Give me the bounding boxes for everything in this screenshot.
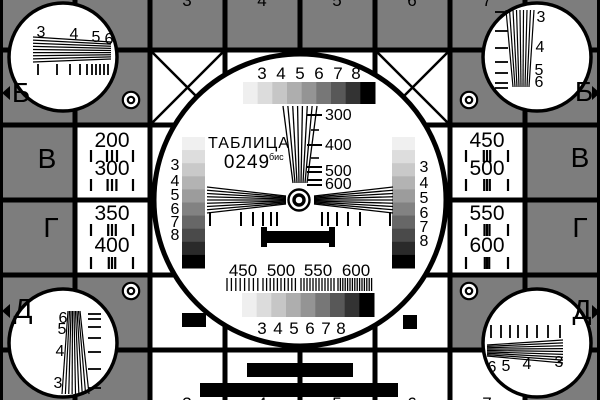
freq-600: 600 bbox=[469, 234, 504, 257]
row-label-d-left: Д bbox=[14, 293, 33, 324]
freq-ticks-500 bbox=[507, 179, 509, 191]
wedge-tl-6: 6 bbox=[105, 31, 114, 48]
grayscale-strip-top-step bbox=[316, 82, 331, 104]
grayscale-bar-left-step bbox=[182, 203, 205, 217]
registration-target bbox=[466, 97, 472, 103]
grayscale-strip-bottom-step bbox=[315, 293, 330, 317]
freq-ticks-300 bbox=[90, 179, 92, 191]
grayscale-bar-left-step bbox=[182, 255, 205, 269]
strip-bottom-4: 4 bbox=[273, 319, 282, 338]
freq-ticks-600 bbox=[465, 257, 467, 269]
registration-target bbox=[466, 288, 472, 294]
freq-ticks-350 bbox=[132, 224, 134, 236]
grayscale-strip-top-step bbox=[243, 82, 258, 104]
burst-label-550: 550 bbox=[304, 261, 332, 280]
wedge-top-right-line bbox=[523, 10, 524, 87]
wedge-tl-5: 5 bbox=[92, 29, 101, 46]
edge-bottom-3: 3 bbox=[182, 394, 191, 400]
freq-350: 350 bbox=[94, 202, 129, 225]
grayscale-bar-right-step bbox=[392, 255, 415, 269]
wedge-bl-5: 5 bbox=[58, 321, 67, 338]
registration-target bbox=[128, 97, 134, 103]
grayscale-bar-left-step bbox=[182, 216, 205, 230]
row-label-g-right: Г bbox=[572, 212, 587, 243]
wedge-tr-6: 6 bbox=[535, 74, 544, 91]
row-label-g-left: Г bbox=[43, 212, 58, 243]
grayscale-strip-top-step bbox=[272, 82, 287, 104]
edge-top-7: 7 bbox=[482, 0, 491, 10]
freq-ticks-300 bbox=[132, 179, 134, 191]
center-black-bar bbox=[263, 231, 333, 243]
grayscale-bar-left-step bbox=[182, 242, 205, 256]
freq-ticks-200 bbox=[132, 150, 134, 162]
wedge-scale-400: 400 bbox=[325, 137, 352, 154]
grayscale-bar-right-step bbox=[392, 229, 415, 243]
grayscale-strip-top-step bbox=[302, 82, 317, 104]
freq-ticks-200 bbox=[90, 150, 92, 162]
freq-550: 550 bbox=[469, 202, 504, 225]
wedge-tr-3: 3 bbox=[537, 9, 546, 26]
strip-top-8: 8 bbox=[351, 64, 360, 83]
edge-top-5: 5 bbox=[332, 0, 341, 10]
grayscale-bar-right-step bbox=[392, 216, 415, 230]
stair-right-8: 8 bbox=[420, 233, 429, 250]
freq-ticks-500 bbox=[483, 179, 485, 191]
freq-ticks-400 bbox=[108, 257, 110, 269]
grayscale-strip-top-step bbox=[346, 82, 361, 104]
grayscale-bar-right-step bbox=[392, 189, 415, 203]
wedge-br-5: 5 bbox=[502, 358, 511, 375]
grayscale-strip-bottom-step bbox=[345, 293, 360, 317]
grayscale-strip-top-step bbox=[258, 82, 273, 104]
grayscale-bar-right-step bbox=[392, 163, 415, 177]
stair-right-3: 3 bbox=[420, 159, 429, 176]
freq-ticks-500 bbox=[489, 179, 491, 191]
freq-ticks-400 bbox=[114, 257, 116, 269]
freq-200: 200 bbox=[94, 129, 129, 152]
grayscale-bar-right-step bbox=[392, 203, 415, 217]
wedge-tl-4: 4 bbox=[70, 26, 79, 43]
grayscale-bar-right-step bbox=[392, 137, 415, 151]
row-label-d-right: Д bbox=[573, 294, 592, 325]
wedge-tl-3: 3 bbox=[37, 24, 46, 41]
grayscale-bar-right-step bbox=[392, 242, 415, 256]
center-bar-cap-left bbox=[261, 227, 267, 247]
stair-left-8: 8 bbox=[171, 227, 180, 244]
row-label-v-right: В bbox=[571, 142, 590, 173]
edge-line bbox=[0, 0, 3, 400]
row-label-b-right: Б bbox=[575, 76, 593, 107]
freq-ticks-500 bbox=[486, 179, 488, 191]
black-square-row-d-right bbox=[403, 315, 417, 329]
grayscale-strip-bottom-step bbox=[301, 293, 316, 317]
strip-top-4: 4 bbox=[276, 64, 285, 83]
wedge-br-3: 3 bbox=[555, 354, 564, 371]
row-label-b-left: Б bbox=[12, 77, 30, 108]
grayscale-bar-left-step bbox=[182, 163, 205, 177]
grayscale-strip-bottom-step bbox=[257, 293, 272, 317]
freq-ticks-550 bbox=[465, 224, 467, 236]
freq-ticks-600 bbox=[486, 257, 488, 269]
edge-top-3: 3 bbox=[182, 0, 191, 10]
freq-ticks-400 bbox=[132, 257, 134, 269]
wedge-scale-300: 300 bbox=[325, 107, 352, 124]
wedge-bottom-right-line bbox=[487, 349, 563, 350]
bottom-bar-long bbox=[200, 383, 398, 397]
strip-bottom-3: 3 bbox=[257, 319, 266, 338]
grayscale-strip-top-step bbox=[360, 82, 375, 104]
freq-ticks-450 bbox=[507, 150, 509, 162]
freq-500: 500 bbox=[469, 157, 504, 180]
burst-label-600: 600 bbox=[342, 261, 370, 280]
card-title-number: 0249 bbox=[224, 152, 270, 173]
card-title-suffix: бис bbox=[269, 152, 284, 162]
grayscale-bar-left-step bbox=[182, 189, 205, 203]
freq-ticks-600 bbox=[488, 257, 490, 269]
grayscale-strip-bottom-step bbox=[271, 293, 286, 317]
edge-bottom-4: 4 bbox=[257, 394, 266, 400]
strip-bottom-8: 8 bbox=[336, 319, 345, 338]
card-title-word: ТАБЛИЦА bbox=[208, 135, 290, 152]
test-card-canvas: ББВВГГДД20030035040045050055060034567834… bbox=[0, 0, 600, 400]
edge-bottom-6: 6 bbox=[407, 394, 416, 400]
freq-ticks-300 bbox=[115, 179, 117, 191]
strip-bottom-6: 6 bbox=[305, 319, 314, 338]
wedge-bl-3: 3 bbox=[54, 375, 63, 392]
freq-ticks-300 bbox=[111, 179, 113, 191]
freq-ticks-500 bbox=[465, 179, 467, 191]
strip-bottom-7: 7 bbox=[321, 319, 330, 338]
freq-ticks-600 bbox=[484, 257, 486, 269]
grayscale-bar-left-step bbox=[182, 137, 205, 151]
freq-ticks-350 bbox=[90, 224, 92, 236]
grayscale-strip-bottom-step bbox=[286, 293, 301, 317]
edge-top-4: 4 bbox=[257, 0, 266, 10]
freq-ticks-600 bbox=[507, 257, 509, 269]
tv-test-card: ББВВГГДД20030035040045050055060034567834… bbox=[0, 0, 600, 400]
wedge-tr-4: 4 bbox=[536, 39, 545, 56]
strip-top-6: 6 bbox=[314, 64, 323, 83]
freq-450: 450 bbox=[469, 129, 504, 152]
stair-left-3: 3 bbox=[171, 157, 180, 174]
grayscale-strip-bottom-step bbox=[359, 293, 374, 317]
freq-ticks-400 bbox=[90, 257, 92, 269]
burst-label-500: 500 bbox=[267, 261, 295, 280]
grayscale-bar-left-step bbox=[182, 176, 205, 190]
grayscale-bar-right-step bbox=[392, 150, 415, 164]
wedge-bl-4: 4 bbox=[56, 343, 65, 360]
burst-label-450: 450 bbox=[229, 261, 257, 280]
wedge-br-6: 6 bbox=[488, 359, 497, 376]
wedge-scale-600: 600 bbox=[325, 176, 352, 193]
grayscale-strip-bottom-step bbox=[242, 293, 257, 317]
freq-300: 300 bbox=[94, 157, 129, 180]
freq-ticks-300 bbox=[107, 179, 109, 191]
grayscale-strip-top-step bbox=[287, 82, 302, 104]
grayscale-bar-left-step bbox=[182, 229, 205, 243]
edge-top-6: 6 bbox=[407, 0, 416, 10]
edge-bottom-7: 7 bbox=[482, 394, 491, 400]
strip-top-3: 3 bbox=[257, 64, 266, 83]
strip-top-5: 5 bbox=[295, 64, 304, 83]
freq-ticks-550 bbox=[507, 224, 509, 236]
registration-target bbox=[128, 288, 134, 294]
center-bar-cap-right bbox=[329, 227, 335, 247]
grayscale-strip-top-step bbox=[331, 82, 346, 104]
row-label-v-left: В bbox=[38, 143, 57, 174]
grayscale-strip-bottom-step bbox=[330, 293, 345, 317]
wedge-br-4: 4 bbox=[523, 356, 532, 373]
black-rect-row-d-left bbox=[182, 313, 206, 327]
edge-bottom-5: 5 bbox=[332, 394, 341, 400]
grayscale-bar-right-step bbox=[392, 176, 415, 190]
freq-ticks-400 bbox=[111, 257, 113, 269]
grayscale-bar-left-step bbox=[182, 150, 205, 164]
strip-top-7: 7 bbox=[333, 64, 342, 83]
bottom-bar-short bbox=[247, 363, 353, 377]
freq-ticks-450 bbox=[465, 150, 467, 162]
strip-bottom-5: 5 bbox=[289, 319, 298, 338]
freq-400: 400 bbox=[94, 234, 129, 257]
